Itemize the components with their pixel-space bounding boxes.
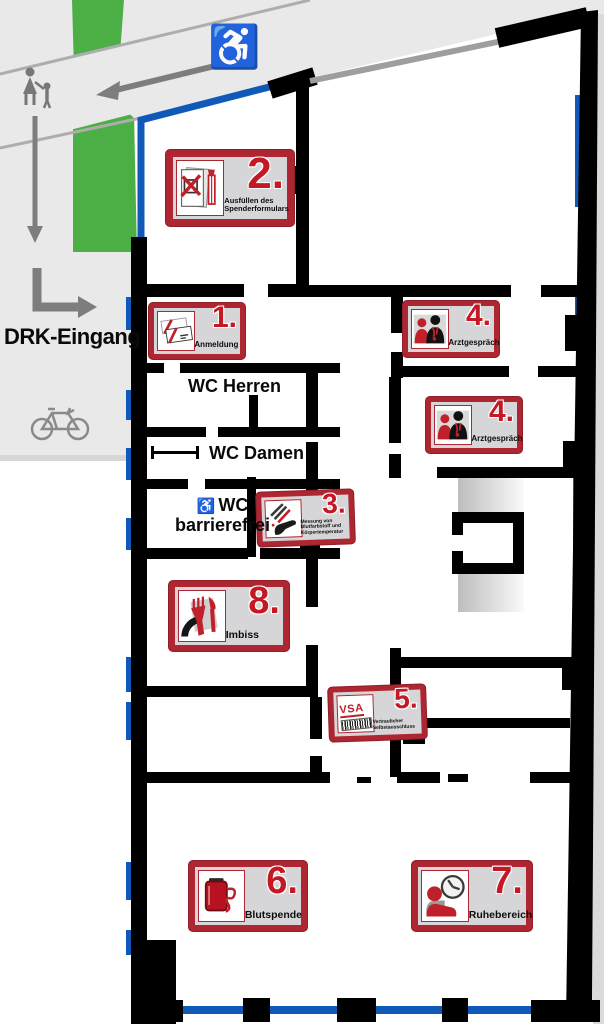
doctor-talk-icon	[434, 405, 472, 445]
floor-plan: ♿ DRK-Eingang WC Herren WC Damen ♿WC bar…	[0, 0, 604, 1024]
room-label-text: WC	[218, 495, 248, 515]
station-number: 2.	[247, 152, 284, 196]
station-label: Vertraulicher Selbstausschluss	[373, 719, 419, 731]
station-label: Imbiss	[226, 630, 280, 641]
station-label: Ausfüllen des Spenderformulars	[224, 197, 284, 213]
blood-bag-icon	[198, 870, 245, 922]
station-sign-8: 8. Imbiss	[169, 581, 289, 651]
station-number: 4.	[466, 301, 491, 331]
station-number: 5.	[394, 685, 418, 714]
station-sign-7: 7. Ruhebereich	[412, 861, 532, 931]
station-sign-5: VSA 5. Vertraulicher Selbstausschluss	[328, 684, 427, 741]
room-label-wc-accessible: ♿WC barrierefrei	[140, 496, 305, 536]
room-label-text: barrierefrei	[175, 515, 270, 535]
vsa-barcode-icon: VSA	[336, 694, 374, 733]
doctor-talk-icon	[411, 309, 449, 349]
station-number: 8.	[248, 582, 280, 620]
wheelchair-icon: ♿	[197, 498, 216, 515]
station-number: 6.	[266, 862, 298, 900]
station-label: Messung von Blutfarbstoff und Körpertemp…	[300, 518, 346, 536]
vsa-text: VSA	[339, 703, 364, 718]
station-sign-4a: 4. Arztgespräch	[403, 301, 499, 357]
station-sign-1: 1. Anmeldung	[149, 303, 245, 359]
station-sign-4b: 4. Arztgespräch	[426, 397, 522, 453]
station-label: Arztgespräch	[448, 339, 491, 348]
station-number: 3.	[322, 490, 346, 519]
cutlery-icon	[178, 590, 226, 642]
room-label-wc-women: WC Damen	[209, 443, 304, 464]
wheelchair-icon: ♿	[208, 26, 260, 68]
room-label-wc-men: WC Herren	[188, 376, 281, 397]
form-pencil-icon	[176, 160, 224, 216]
barcode-icon	[341, 717, 373, 731]
station-sign-6: 6. Blutspende	[189, 861, 307, 931]
station-number: 7.	[491, 862, 523, 900]
station-number: 4.	[489, 397, 514, 427]
station-sign-2: 2. Ausfüllen des Spenderformulars	[166, 150, 294, 226]
station-label: Blutspende	[245, 910, 298, 921]
station-label: Anmeldung	[194, 341, 237, 350]
entrance-label: DRK-Eingang	[4, 324, 140, 350]
rest-clock-icon	[421, 870, 469, 922]
station-number: 1.	[212, 303, 237, 333]
station-label: Arztgespräch	[471, 435, 514, 444]
id-cards-icon	[157, 311, 195, 351]
station-label: Ruhebereich	[469, 910, 523, 921]
